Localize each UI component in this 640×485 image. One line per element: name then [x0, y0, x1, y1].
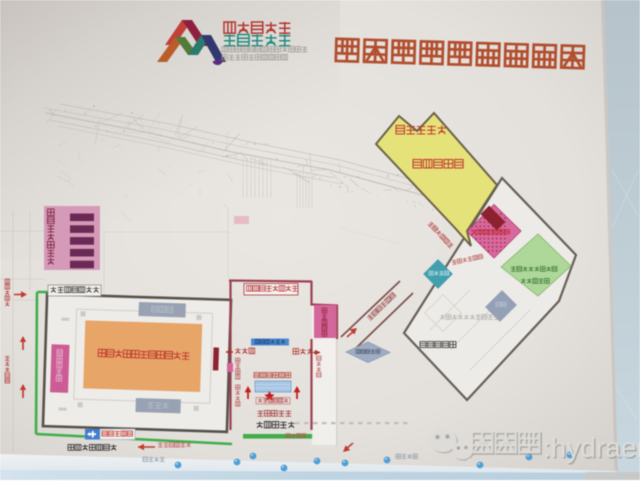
svg-text::hydraer: :hydraer	[543, 432, 640, 463]
